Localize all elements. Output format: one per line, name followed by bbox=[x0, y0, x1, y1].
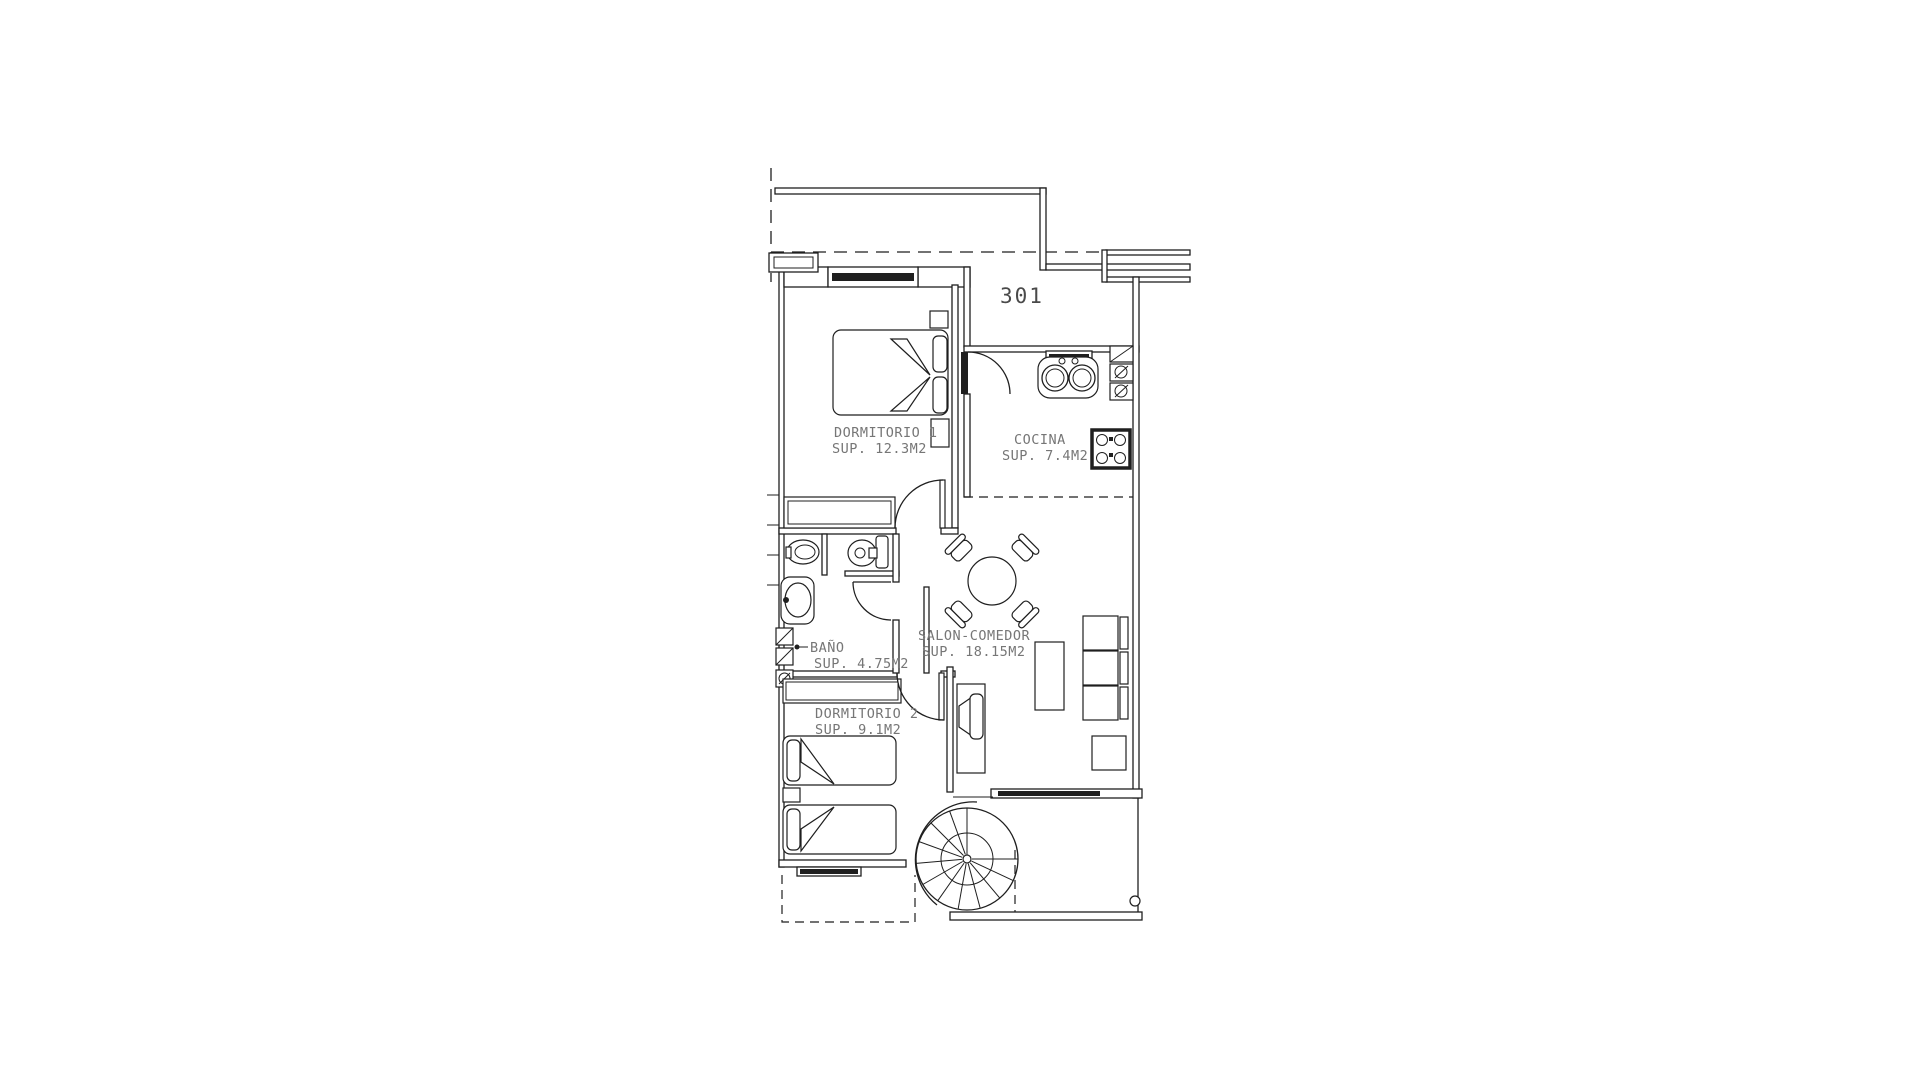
sofa-icon bbox=[1083, 616, 1128, 720]
unit-entrance-area: 301 bbox=[1000, 284, 1044, 308]
room-area-dormitorio1: SUP. 12.3M2 bbox=[832, 441, 927, 457]
coffee-table-icon bbox=[1035, 642, 1064, 710]
appliance-icon bbox=[1110, 383, 1133, 400]
floorplan-page: 301 DORMITORIO 1 SUP. 12.3M2 bbox=[0, 0, 1920, 1080]
label-leader bbox=[795, 645, 809, 650]
bathroom: BAÑO SUP. 4.75M2 bbox=[776, 534, 909, 687]
single-bed-icon bbox=[783, 805, 896, 854]
nightstand-icon bbox=[930, 311, 948, 328]
room-area-salon: SUP. 18.15M2 bbox=[922, 644, 1026, 660]
room-area-dormitorio2: SUP. 9.1M2 bbox=[815, 722, 901, 738]
dining-table-icon bbox=[944, 533, 1040, 629]
room-label-cocina: COCINA bbox=[1014, 432, 1066, 448]
side-table-icon bbox=[1092, 736, 1126, 770]
window-topleft bbox=[769, 253, 818, 272]
wardrobe-icon bbox=[783, 679, 901, 703]
stove-icon bbox=[1092, 430, 1130, 468]
balcony-projection bbox=[782, 875, 915, 922]
door-bedroom1-icon bbox=[895, 480, 945, 528]
room-label-dormitorio2: DORMITORIO 2 bbox=[815, 706, 919, 722]
door-kitchen-icon bbox=[961, 352, 1010, 394]
shaft-hatch-icon bbox=[776, 628, 793, 687]
room-area-bano: SUP. 4.75M2 bbox=[814, 656, 909, 672]
single-bed-icon bbox=[783, 736, 896, 785]
nightstand-icon bbox=[783, 788, 800, 802]
tv-icon bbox=[957, 684, 985, 773]
floorplan-drawing: 301 DORMITORIO 1 SUP. 12.3M2 bbox=[0, 0, 1920, 1080]
unit-number-label: 301 bbox=[1000, 284, 1044, 308]
room-area-cocina: SUP. 7.4M2 bbox=[1002, 448, 1088, 464]
room-label-bano: BAÑO bbox=[810, 639, 845, 656]
bedroom2: DORMITORIO 2 SUP. 9.1M2 bbox=[783, 673, 944, 876]
double-sink-icon bbox=[1038, 357, 1098, 398]
washbasin-icon bbox=[781, 577, 814, 624]
spiral-staircase-icon bbox=[915, 802, 1018, 910]
closet-bedroom1-icon bbox=[784, 497, 895, 528]
appliance-icon bbox=[1110, 364, 1133, 381]
double-bed-icon bbox=[833, 330, 948, 415]
room-label-dormitorio1: DORMITORIO 1 bbox=[834, 425, 938, 441]
toilet-icon bbox=[848, 536, 888, 568]
door-bathroom-icon bbox=[853, 582, 891, 620]
bedroom1: DORMITORIO 1 SUP. 12.3M2 bbox=[784, 267, 949, 528]
corner-cabinet-icon bbox=[1110, 346, 1133, 362]
window-bedroom1-icon bbox=[828, 267, 918, 287]
window-bedroom2-icon bbox=[797, 867, 861, 876]
room-label-salon: SALON-COMEDOR bbox=[918, 628, 1031, 644]
window-salon-icon bbox=[998, 791, 1100, 796]
kitchen: COCINA SUP. 7.4M2 bbox=[961, 346, 1133, 497]
bidet-icon bbox=[786, 540, 819, 564]
